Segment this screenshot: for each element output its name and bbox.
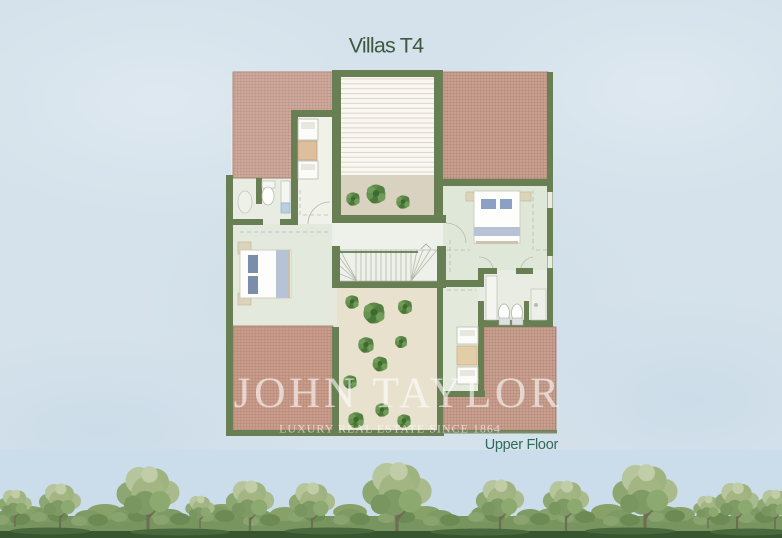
svg-text:Upper Floor: Upper Floor: [485, 437, 559, 453]
svg-text:JOHN TAYLOR: JOHN TAYLOR: [234, 369, 563, 417]
svg-text:Villas T4: Villas T4: [349, 34, 424, 58]
svg-text:LUXURY REAL ESTATE SINCE 1864: LUXURY REAL ESTATE SINCE 1864: [279, 422, 501, 436]
